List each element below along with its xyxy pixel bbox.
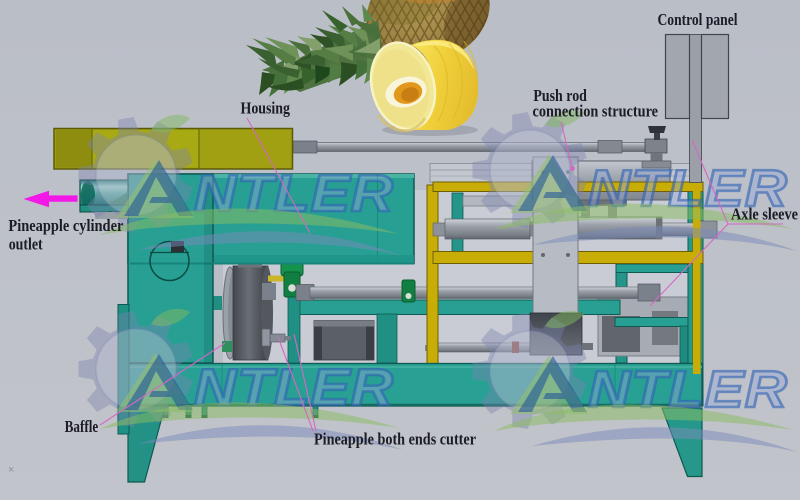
svg-text:Housing: Housing: [241, 99, 291, 118]
svg-text:Pineapple both ends cutter: Pineapple both ends cutter: [314, 430, 476, 449]
svg-text:Baffle: Baffle: [65, 417, 99, 436]
svg-text:Pineapple cylinder: Pineapple cylinder: [8, 216, 123, 235]
svg-text:×: ×: [8, 464, 14, 476]
svg-text:outlet: outlet: [9, 234, 43, 253]
svg-text:Control panel: Control panel: [658, 10, 738, 29]
svg-text:connection structure: connection structure: [533, 102, 659, 121]
svg-text:Axle sleeve: Axle sleeve: [731, 204, 798, 223]
